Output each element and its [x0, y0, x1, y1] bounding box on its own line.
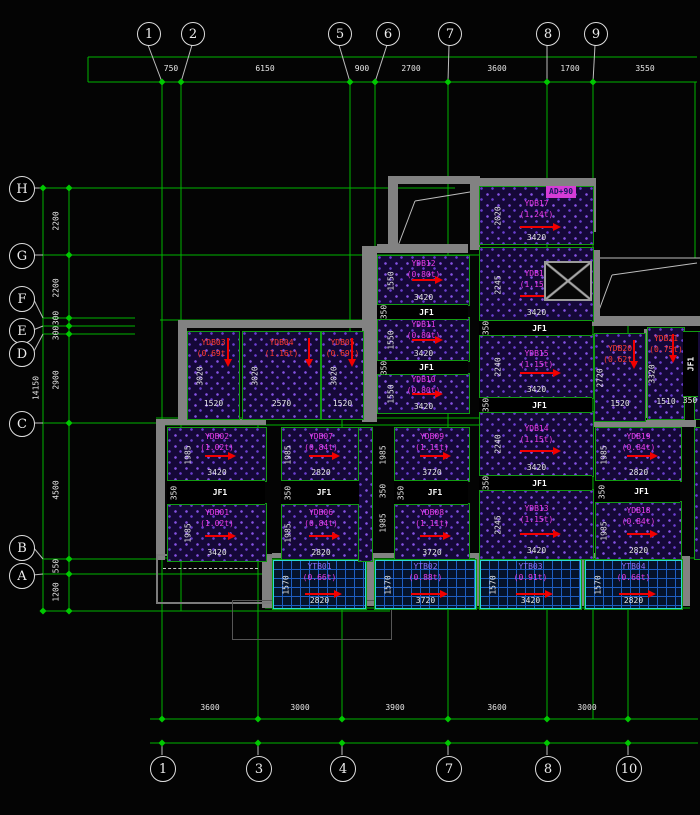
width-dim-label: 2820 [629, 546, 648, 555]
width-dim-label: 3420 [527, 233, 546, 242]
bottom-dim-label: 3600 [487, 703, 506, 712]
beam-strip-2: JF1350 [394, 480, 468, 505]
load-direction-arrow-icon [227, 338, 229, 360]
axis-bubble-top-6: 9 [584, 22, 608, 46]
load-direction-arrow-icon [305, 593, 335, 595]
axis-bubble-top-4: 7 [438, 22, 462, 46]
beam-offset-dim-label: 350 [482, 321, 491, 335]
left-dim-label: 300 [52, 326, 61, 340]
panel-name-label: YDB20 [608, 344, 632, 353]
panel-load-label: (1.15t) [520, 515, 554, 524]
panel-load-label: (0.84t) [622, 443, 656, 452]
beam-strip-label: JF1 [428, 488, 442, 497]
beam-strip-1: JF1350 [281, 480, 359, 505]
width-dim-label: 3420 [521, 596, 540, 605]
top-dim-label: 1700 [560, 64, 579, 73]
beam-strip-5: JF1350 [479, 320, 592, 336]
width-dim-label: 3420 [414, 349, 433, 358]
between-bay-dim-label: 1985 [379, 513, 388, 532]
panel-load-label: (0.84t) [304, 519, 338, 528]
slab-panel-ydb17[interactable]: YDB17(1.24t)34202020 [479, 186, 594, 245]
panel-load-label: (0.75t) [649, 345, 683, 354]
slab-panel-ytb03[interactable]: YTB03(0.91t)34201570 [479, 559, 582, 610]
width-dim-label: 1520 [204, 399, 223, 408]
panel-name-label: YDB12 [411, 259, 435, 268]
load-direction-arrow-icon [351, 338, 353, 360]
panel-name-label: YDB06 [309, 508, 333, 517]
width-dim-label: 2820 [311, 468, 330, 477]
panel-name-label: YDB02 [205, 432, 229, 441]
panel-name-label: YDB15 [524, 349, 548, 358]
panel-load-label: (0.69t) [326, 349, 360, 358]
beam-strip-3: JF1350 [377, 304, 468, 320]
width-dim-label: 3420 [527, 546, 546, 555]
beam-strip-label: JF1 [686, 357, 695, 371]
beam-strip-label: JF1 [213, 488, 227, 497]
panel-name-label: YDB10 [411, 375, 435, 384]
beam-strip-label: JF1 [532, 479, 546, 488]
axis-bubble-left-1: G [9, 243, 35, 269]
height-dim-label: 2720 [596, 368, 605, 387]
width-dim-label: 3420 [207, 548, 226, 557]
left-dim-label: 2200 [52, 278, 61, 297]
top-dim-label: 750 [164, 64, 178, 73]
load-direction-arrow-icon [619, 593, 649, 595]
width-dim-label: 3720 [416, 596, 435, 605]
wall-segment-2 [156, 419, 165, 560]
wall-segment-12 [592, 316, 700, 326]
slab-panel-ydb07[interactable]: YDB07(0.84t)28201985 [281, 427, 361, 482]
beam-offset-dim-label: 350 [170, 485, 179, 499]
slab-panel-ydb13[interactable]: YDB13(1.15t)34202245 [479, 489, 594, 560]
width-dim-label: 2820 [310, 596, 329, 605]
width-dim-label: 3420 [527, 308, 546, 317]
beam-strip-9: JF1 [683, 331, 698, 397]
panel-load-label: (0.88t) [409, 573, 443, 582]
panel-name-label: YTB03 [518, 562, 542, 571]
top-dim-label: 900 [355, 64, 369, 73]
beam-strip-label: JF1 [532, 401, 546, 410]
height-dim-label: 3020 [330, 366, 339, 385]
load-direction-arrow-icon [520, 372, 554, 374]
width-dim-label: 3720 [422, 468, 441, 477]
bottom-dim-label: 3600 [200, 703, 219, 712]
axis-bubble-left-7: A [9, 563, 35, 589]
axis-bubble-top-1: 2 [181, 22, 205, 46]
height-dim-label: 1985 [284, 523, 293, 542]
wall-segment-1 [178, 328, 187, 422]
panel-load-label: (0.84t) [622, 517, 656, 526]
panel-name-label: YTB04 [621, 562, 645, 571]
height-dim-label: 1985 [184, 445, 193, 464]
panel-name-label: YDB18 [626, 506, 650, 515]
load-direction-arrow-icon [412, 393, 436, 395]
panel-name-label: YDB19 [626, 432, 650, 441]
width-dim-label: 1510 [656, 397, 675, 406]
beam-strip-6: JF1350 [479, 397, 592, 413]
beam-strip-label: JF1 [634, 487, 648, 496]
slab-panel-ydb14[interactable]: YDB14(1.15t)34202240 [479, 411, 594, 477]
height-dim-label: 1985 [284, 445, 293, 464]
panel-name-label: YDB03 [201, 338, 225, 347]
cad-drawing-canvas[interactable]: YDB01(1.02t)34201985YDB02(1.02t)34201985… [0, 0, 700, 815]
panel-name-label: YDB08 [420, 508, 444, 517]
top-dim-label: 3550 [635, 64, 654, 73]
axis-bubble-bottom-1: 3 [246, 756, 272, 782]
between-bay-dim-label: 1985 [379, 445, 388, 464]
left-dim-label: 550 [52, 559, 61, 573]
width-dim-label: 2820 [311, 548, 330, 557]
panel-name-label: YDB17 [524, 199, 548, 208]
slab-panel-ytb02[interactable]: YTB02(0.88t)37201570 [374, 559, 477, 610]
load-direction-arrow-icon [627, 455, 651, 457]
beam-strip-8: JF1350 [595, 480, 680, 503]
wall-segment-0 [178, 320, 362, 328]
panel-name-label: YTB02 [413, 562, 437, 571]
beam-strip-7: JF1350 [479, 475, 592, 491]
axis-bubble-bottom-5: 10 [616, 756, 642, 782]
panel-load-label: (0.84t) [304, 443, 338, 452]
load-direction-arrow-icon [411, 593, 441, 595]
axis-bubble-left-0: H [9, 176, 35, 202]
load-direction-arrow-icon [420, 455, 444, 457]
panel-name-label: YDB01 [205, 508, 229, 517]
left-dim-label: 300 [52, 311, 61, 325]
height-dim-label: 1985 [184, 523, 193, 542]
height-dim-label: 1985 [600, 445, 609, 464]
slab-panel-ydb11[interactable]: YDB11(0.80t)34201550 [377, 317, 470, 362]
load-direction-arrow-icon [309, 455, 333, 457]
beam-strip-label: JF1 [532, 324, 546, 333]
slab-hatch-sliver-2 [694, 427, 700, 560]
width-dim-label: 3420 [527, 385, 546, 394]
height-dim-label: 1570 [489, 575, 498, 594]
load-direction-arrow-icon [520, 226, 554, 228]
width-dim-label: 3420 [527, 463, 546, 472]
axis-bubble-bottom-2: 4 [330, 756, 356, 782]
height-dim-label: 1550 [387, 384, 396, 403]
beam-strip-label: JF1 [419, 308, 433, 317]
axis-bubble-bottom-4: 8 [535, 756, 561, 782]
height-dim-label: 2245 [494, 275, 503, 294]
width-dim-label: 3420 [414, 402, 433, 411]
beam-offset-dim-label: 350 [380, 360, 389, 374]
between-bay-dim-label: 350 [379, 484, 388, 498]
beam-strip-4: JF1350 [377, 360, 468, 375]
width-dim-label: 3420 [207, 468, 226, 477]
axis-bubble-left-6: B [9, 535, 35, 561]
right-edge-offset-dim-label: 350 [683, 396, 697, 405]
slab-panel-ydb03[interactable]: YDB03(0.69t)15203020 [187, 331, 240, 420]
load-direction-arrow-icon [309, 535, 333, 537]
beam-strip-label: JF1 [419, 363, 433, 372]
panel-load-label: (1.24t) [520, 210, 554, 219]
beam-offset-dim-label: 350 [598, 484, 607, 498]
load-direction-arrow-icon [420, 535, 444, 537]
top-dim-label: 3600 [487, 64, 506, 73]
slab-panel-ydb20[interactable]: YDB20(0.62t)15202720 [594, 333, 646, 422]
height-dim-label: 1570 [594, 575, 603, 594]
width-dim-label: 3420 [414, 293, 433, 302]
slab-panel-ydb21[interactable]: YDB21(0.75t)15103320 [647, 327, 685, 420]
panel-name-label: YDB11 [411, 320, 435, 329]
opening-cross-icon [544, 261, 592, 301]
axis-bubble-top-5: 8 [536, 22, 560, 46]
panel-name-label: YTB01 [307, 562, 331, 571]
panel-name-label: YDB13 [524, 504, 548, 513]
wall-segment-6 [388, 176, 398, 250]
wall-segment-7 [388, 176, 480, 184]
panel-load-label: (1.11t) [415, 519, 449, 528]
panel-load-label: (1.02t) [200, 443, 234, 452]
load-direction-arrow-icon [205, 455, 229, 457]
beam-offset-dim-label: 350 [380, 305, 389, 319]
beam-offset-dim-label: 350 [397, 485, 406, 499]
beam-offset-dim-label: 350 [284, 485, 293, 499]
load-direction-arrow-icon [672, 334, 674, 356]
axis-bubble-top-3: 6 [376, 22, 400, 46]
height-dim-label: 1570 [282, 575, 291, 594]
height-dim-label: 1550 [387, 271, 396, 290]
height-dim-label: 3020 [251, 366, 260, 385]
height-dim-label: 1985 [600, 521, 609, 540]
axis-bubble-left-2: F [9, 286, 35, 312]
load-direction-arrow-icon [412, 339, 436, 341]
panel-load-label: (1.16t) [265, 349, 299, 358]
bottom-dim-label: 3000 [290, 703, 309, 712]
slab-panel-ytb04[interactable]: YTB04(0.66t)28201570 [584, 559, 683, 610]
revision-annotation-tag: AD+90 [546, 186, 576, 198]
slab-panel-ydb19[interactable]: YDB19(0.84t)28201985 [595, 427, 682, 482]
load-direction-arrow-icon [308, 338, 310, 360]
panel-load-label: (0.66t) [303, 573, 337, 582]
width-dim-label: 1520 [610, 399, 629, 408]
panel-name-label: YDB07 [309, 432, 333, 441]
left-dim-label: 2200 [52, 211, 61, 230]
left-dim-label: 4500 [52, 480, 61, 499]
beam-offset-dim-label: 350 [482, 398, 491, 412]
width-dim-label: 3720 [422, 548, 441, 557]
slab-panel-ydb04[interactable]: YDB04(1.16t)25703020 [242, 331, 321, 420]
wall-segment-4 [362, 246, 377, 422]
load-direction-arrow-icon [516, 593, 546, 595]
width-dim-label: 2820 [629, 468, 648, 477]
left-dim-label: 1200 [52, 582, 61, 601]
panel-name-label: YDB09 [420, 432, 444, 441]
slab-panel-ydb02[interactable]: YDB02(1.02t)34201985 [167, 427, 267, 482]
panel-load-label: (0.69t) [197, 349, 231, 358]
axis-bubble-top-0: 1 [137, 22, 161, 46]
panel-load-label: (1.15t) [520, 435, 554, 444]
height-dim-label: 2240 [494, 434, 503, 453]
height-dim-label: 3020 [196, 366, 205, 385]
load-direction-arrow-icon [205, 535, 229, 537]
slab-panel-ydb01[interactable]: YDB01(1.02t)34201985 [167, 503, 267, 562]
slab-panel-ydb10[interactable]: YDB10(0.80t)34201550 [377, 373, 470, 414]
wall-segment-9 [478, 178, 596, 186]
load-direction-arrow-icon [627, 533, 651, 535]
axis-bubble-left-4: D [9, 341, 35, 367]
slab-panel-ydb18[interactable]: YDB18(0.84t)28201985 [595, 501, 682, 560]
height-dim-label: 2020 [494, 206, 503, 225]
left-dim-label: 2900 [52, 370, 61, 389]
hidden-edge-dashed-line [163, 568, 258, 569]
axis-bubble-top-2: 5 [328, 22, 352, 46]
panel-load-label: (1.15t) [520, 360, 554, 369]
width-dim-label: 2820 [624, 596, 643, 605]
width-dim-label: 1520 [333, 399, 352, 408]
slab-panel-ytb01[interactable]: YTB01(0.66t)28201570 [272, 559, 367, 610]
panel-load-label: (1.02t) [200, 519, 234, 528]
slab-panel-ydb12[interactable]: YDB12(0.80t)34201550 [377, 255, 470, 306]
panel-name-label: YDB21 [654, 334, 678, 343]
slab-panel-ydb08[interactable]: YDB08(1.11t)3720 [394, 503, 470, 562]
panel-load-label: (1.11t) [415, 443, 449, 452]
panel-load-label: (0.66t) [617, 573, 651, 582]
panel-load-label: (0.91t) [514, 573, 548, 582]
beam-offset-dim-label: 350 [482, 476, 491, 490]
panel-name-label: YDB04 [269, 338, 293, 347]
beam-strip-0: JF1350 [167, 480, 265, 505]
axis-bubble-left-5: C [9, 411, 35, 437]
bottom-dim-label: 3000 [577, 703, 596, 712]
load-direction-arrow-icon [412, 279, 436, 281]
load-direction-arrow-icon [520, 450, 554, 452]
slab-hatch-sliver-0 [358, 427, 373, 562]
axis-bubble-bottom-0: 1 [150, 756, 176, 782]
height-dim-label: 1550 [387, 330, 396, 349]
load-direction-arrow-icon [633, 340, 635, 362]
top-dim-label: 6150 [255, 64, 274, 73]
axis-bubble-bottom-3: 7 [436, 756, 462, 782]
beam-strip-label: JF1 [317, 488, 331, 497]
width-dim-label: 2570 [272, 399, 291, 408]
top-dim-label: 2700 [401, 64, 420, 73]
height-dim-label: 2240 [494, 357, 503, 376]
height-dim-label: 1570 [384, 575, 393, 594]
slab-panel-ydb15[interactable]: YDB15(1.15t)34202240 [479, 334, 594, 399]
slab-panel-ydb05[interactable]: YDB05(0.69t)15203020 [321, 331, 364, 420]
panel-name-label: YDB14 [524, 424, 548, 433]
height-dim-label: 3320 [648, 364, 657, 383]
left-total-dim-label: 14150 [32, 376, 41, 400]
bottom-dim-label: 3900 [385, 703, 404, 712]
load-direction-arrow-icon [520, 533, 554, 535]
slab-panel-ydb09[interactable]: YDB09(1.11t)3720 [394, 427, 470, 482]
slab-panel-ydb06[interactable]: YDB06(0.84t)28201985 [281, 503, 361, 562]
height-dim-label: 2245 [494, 515, 503, 534]
